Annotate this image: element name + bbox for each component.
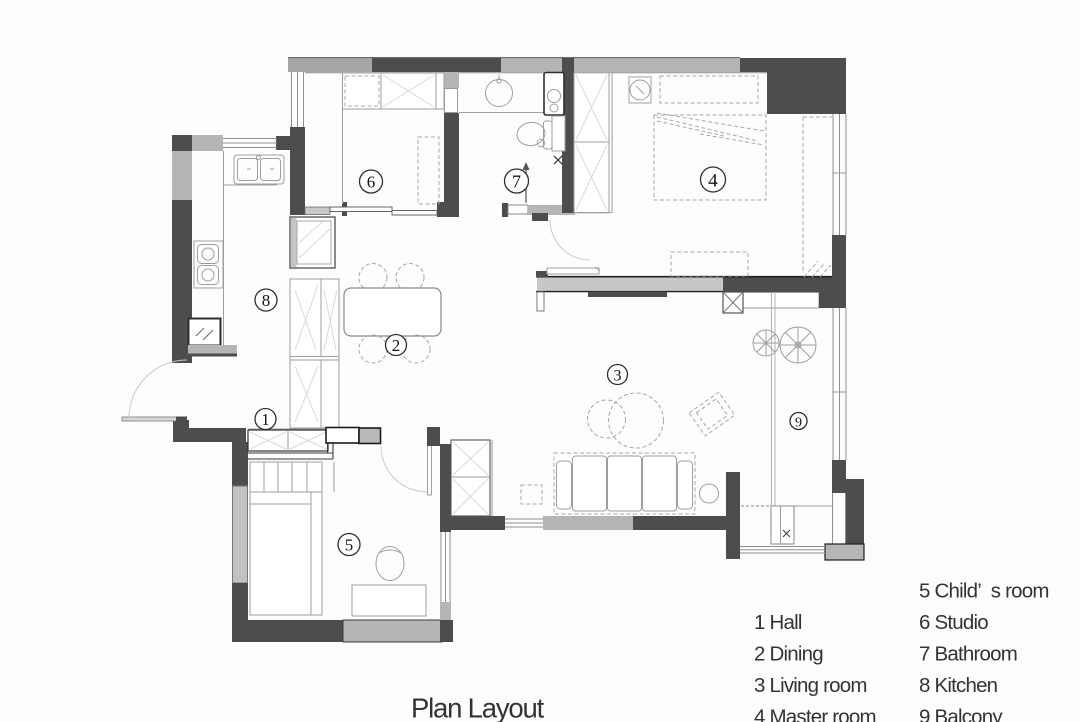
svg-text:Plan Layout: Plan Layout <box>411 693 545 722</box>
svg-text:5: 5 <box>345 536 354 555</box>
svg-text:5 Child’ s room: 5 Child’ s room <box>919 580 1049 603</box>
svg-text:6: 6 <box>367 173 376 192</box>
svg-text:8: 8 <box>262 291 271 310</box>
svg-text:9: 9 <box>795 416 802 431</box>
svg-text:1: 1 <box>261 410 270 429</box>
svg-text:7: 7 <box>512 172 521 192</box>
svg-text:8 Kitchen: 8 Kitchen <box>919 674 998 697</box>
svg-text:2 Dining: 2 Dining <box>754 643 823 666</box>
svg-text:4 Master room: 4 Master room <box>754 706 876 722</box>
svg-text:6 Studio: 6 Studio <box>919 611 988 634</box>
svg-text:3: 3 <box>614 368 622 385</box>
svg-text:3 Living room: 3 Living room <box>754 674 867 697</box>
svg-text:9 Balcony: 9 Balcony <box>919 706 1003 722</box>
svg-text:2: 2 <box>392 336 401 355</box>
svg-text:7 Bathroom: 7 Bathroom <box>919 643 1017 666</box>
svg-text:1 Hall: 1 Hall <box>754 611 802 634</box>
svg-text:4: 4 <box>708 171 718 192</box>
